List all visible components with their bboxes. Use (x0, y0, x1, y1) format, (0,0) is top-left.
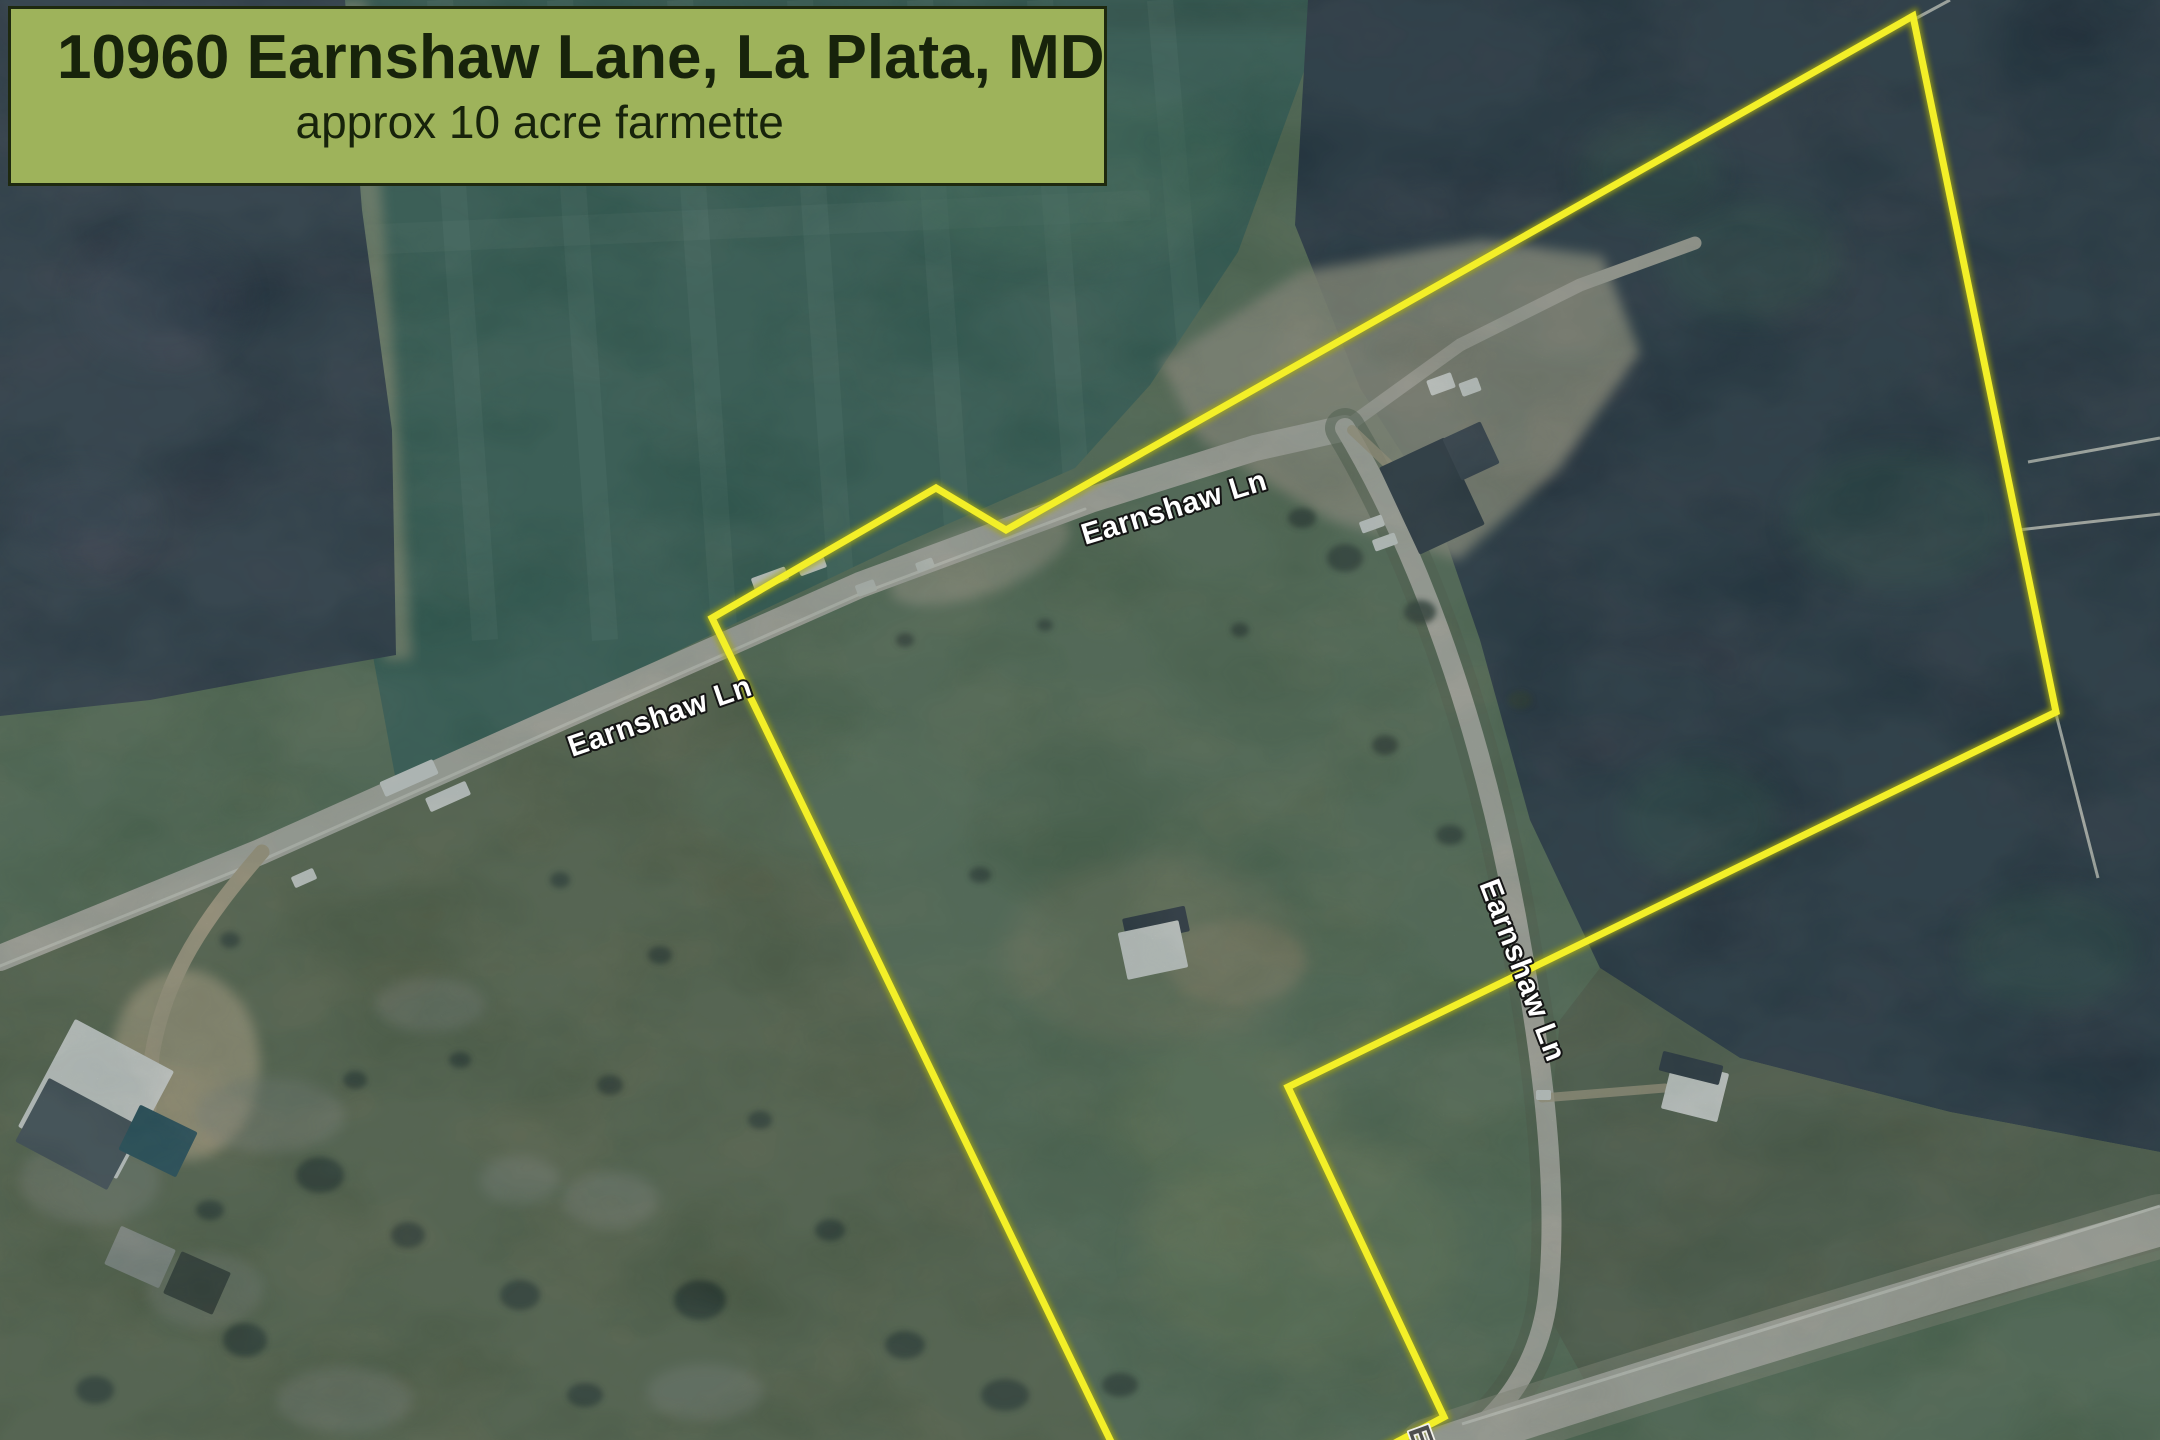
address-line: 10960 Earnshaw Lane, La Plata, MD (57, 19, 1084, 97)
listing-map-slide: Earnshaw LnEarnshaw LnEarnshaw LnEarnsha… (0, 0, 2160, 1440)
subtitle-line: approx 10 acre farmette (57, 97, 1022, 148)
title-card: 10960 Earnshaw Lane, La Plata, MD approx… (8, 6, 1107, 186)
satellite-map: Earnshaw LnEarnshaw LnEarnshaw LnEarnsha… (0, 0, 2160, 1440)
satellite-mottle-dark (0, 0, 2160, 1440)
